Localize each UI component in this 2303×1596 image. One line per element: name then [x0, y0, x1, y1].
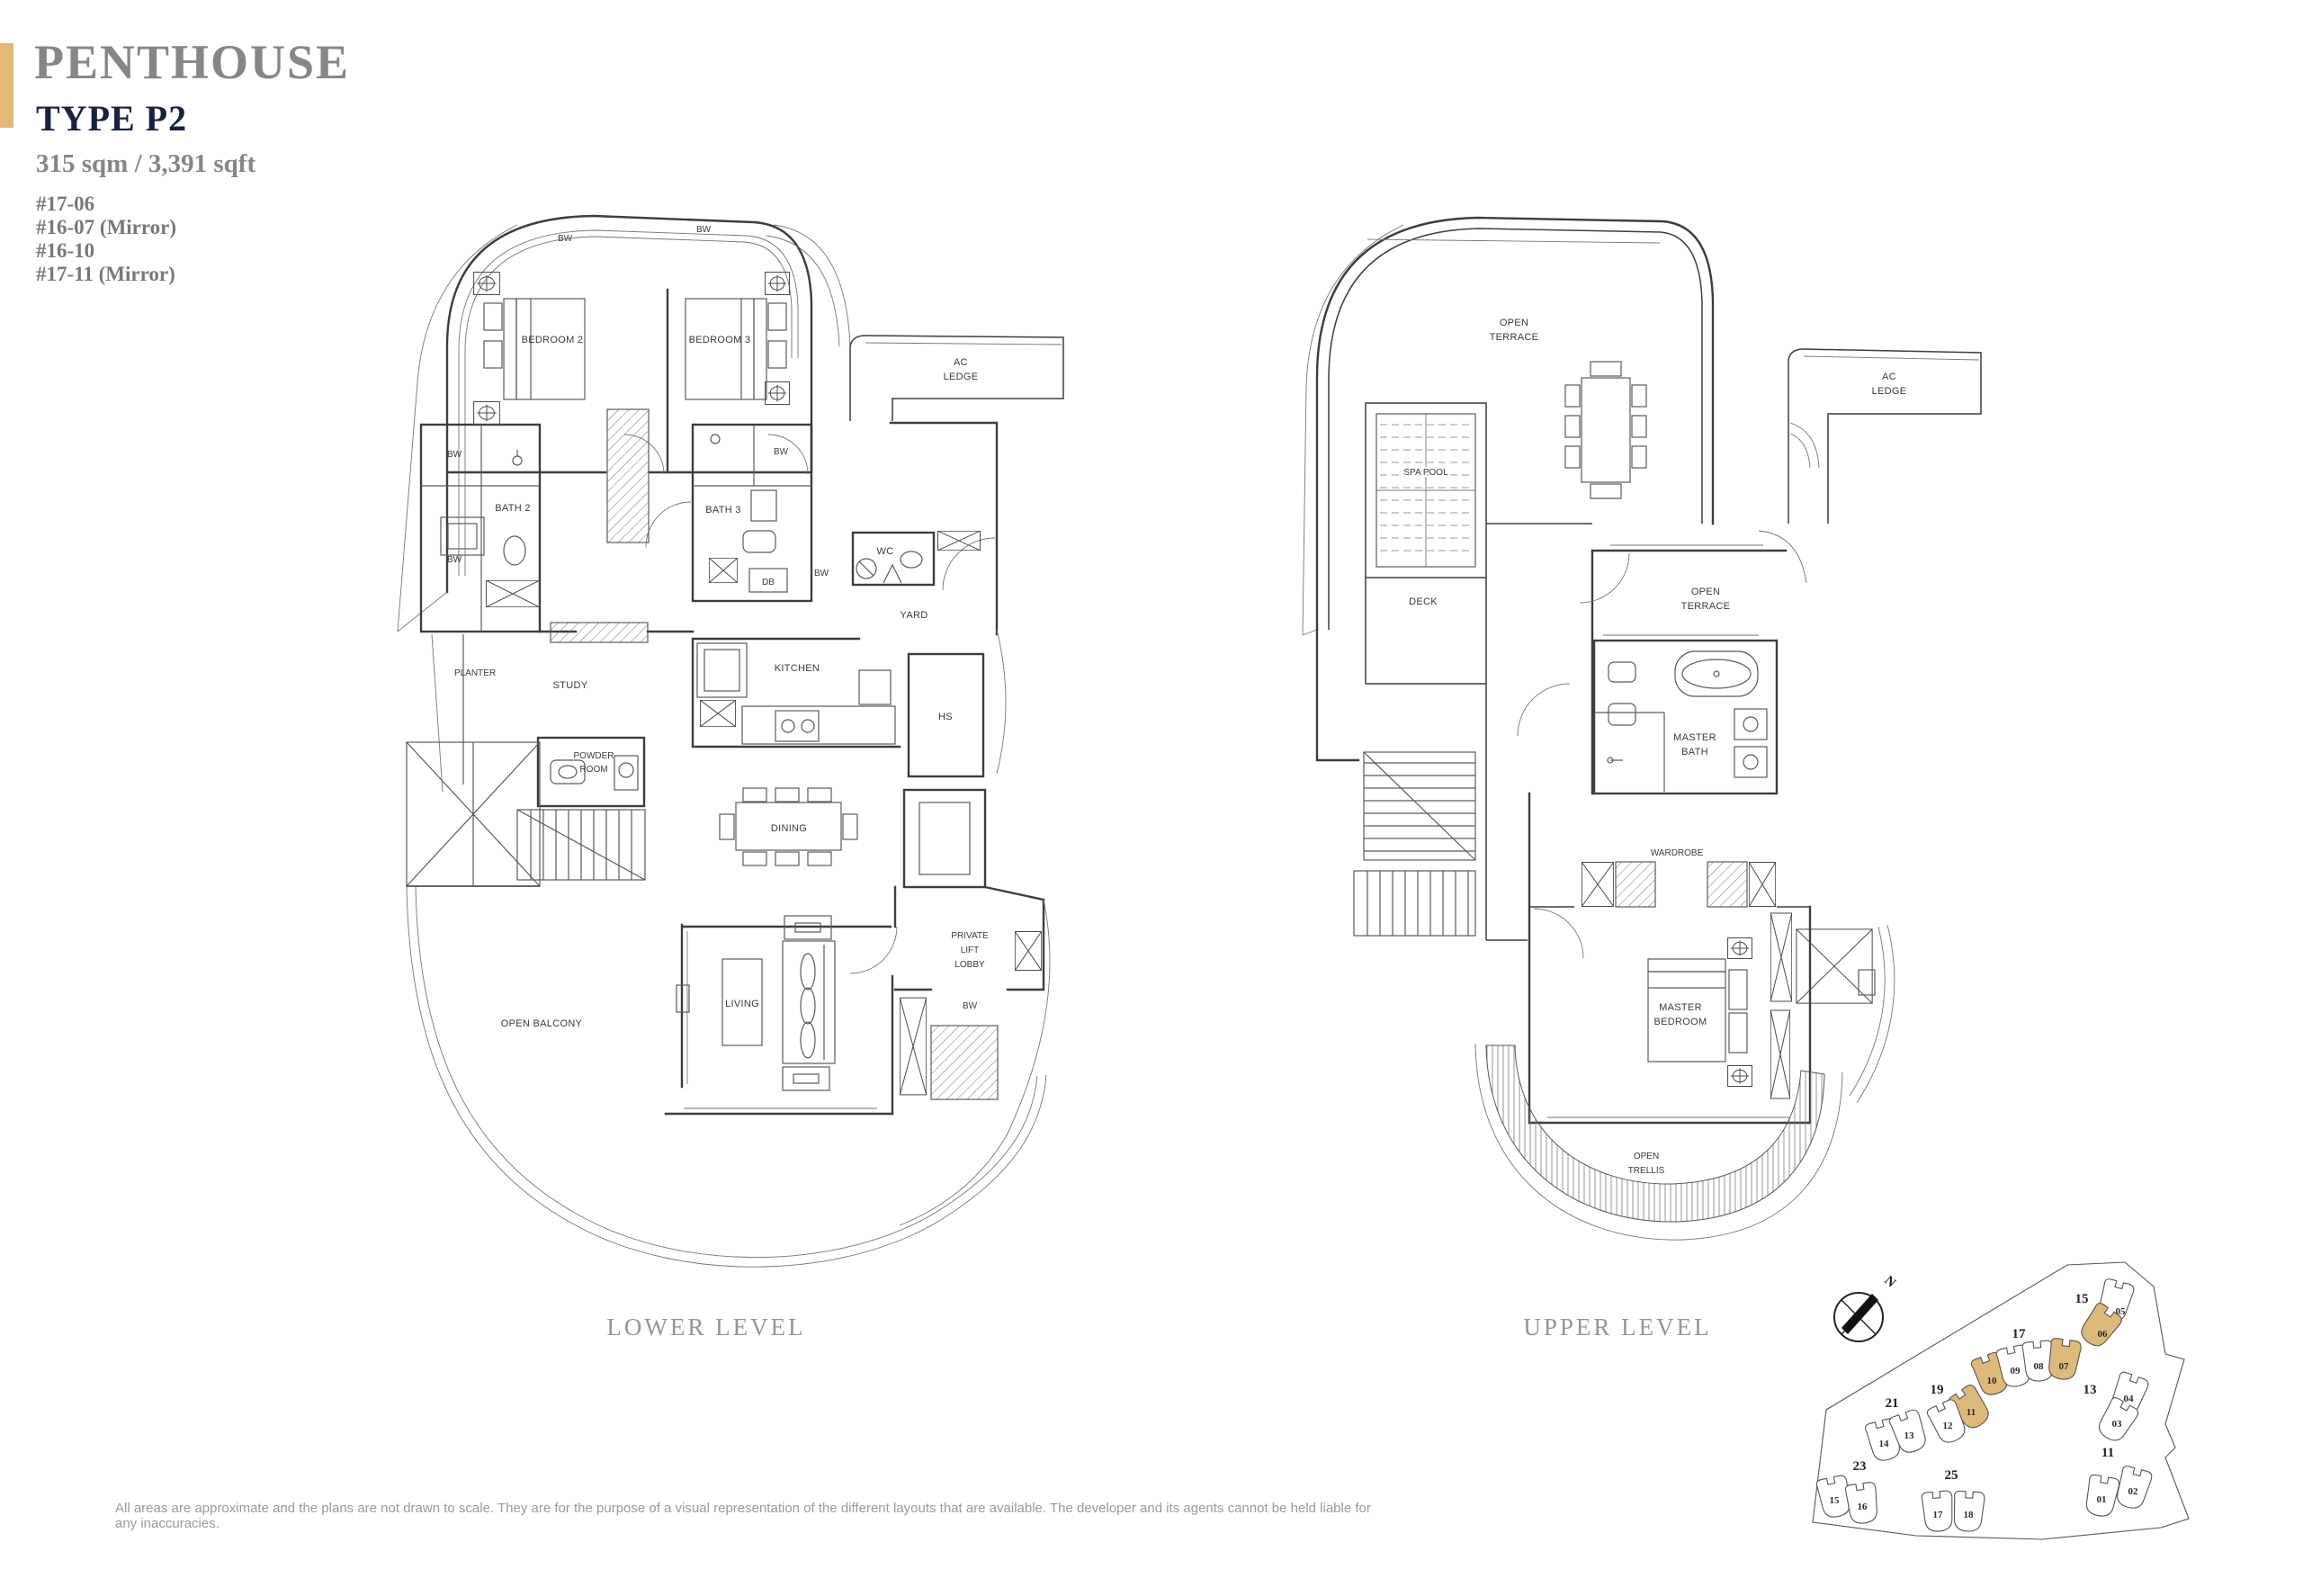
unit-label-13: 13 [1904, 1430, 1915, 1441]
label-hs: HS [938, 712, 953, 722]
unit-label-07: 07 [2059, 1361, 2070, 1372]
caption-lower-level: LOWER LEVEL [562, 1314, 850, 1341]
label-bath3: BATH 3 [705, 505, 741, 516]
label-open-terrace: TERRACE [1490, 332, 1539, 343]
label-ac-ledge: AC [1882, 372, 1896, 382]
label-open-balcony: OPEN BALCONY [501, 1018, 583, 1029]
label-bedroom2: BEDROOM 2 [522, 335, 584, 345]
unit-label-05: 05 [2116, 1306, 2127, 1317]
compass-icon: N [1834, 1273, 1898, 1341]
site-plan: N [1808, 1242, 2303, 1596]
label-open-terrace: OPEN [1500, 318, 1528, 328]
label-ac-ledge: LEDGE [944, 372, 979, 382]
unit-label-17: 17 [1933, 1510, 1944, 1520]
block-label-11: 11 [2101, 1446, 2114, 1460]
label-bath2: BATH 2 [495, 503, 531, 514]
unit-label-03: 03 [2112, 1419, 2123, 1430]
unit-list: #17-06 #16-07 (Mirror) #16-10 #17-11 (Mi… [36, 193, 176, 286]
unit-label-06: 06 [2098, 1329, 2109, 1340]
upper-walls [1303, 218, 1981, 1240]
unit-label-14: 14 [1879, 1439, 1890, 1449]
label-private-lift-lobby: LOBBY [954, 960, 985, 970]
label-master-bedroom: BEDROOM [1654, 1017, 1707, 1027]
label-powder-room: POWDER [574, 751, 614, 761]
label-bw: BW [447, 450, 462, 460]
label-master-bath: BATH [1681, 747, 1708, 758]
block-label-25: 25 [1945, 1468, 1958, 1483]
area-label: 315 sqm / 3,391 sqft [36, 149, 255, 179]
unit-label-04: 04 [2124, 1394, 2135, 1404]
label-powder-room: ROOM [579, 765, 607, 775]
type-label: TYPE P2 [36, 97, 187, 139]
unit-label-02: 02 [2128, 1486, 2139, 1497]
label-study: STUDY [553, 680, 588, 691]
label-master-bedroom: MASTER [1659, 1002, 1702, 1013]
label-planter: PLANTER [454, 668, 496, 678]
unit-item: #17-06 [36, 193, 176, 216]
unit-item: #16-07 (Mirror) [36, 216, 176, 239]
block-label-15: 15 [2075, 1292, 2089, 1306]
block-label-19: 19 [1931, 1383, 1944, 1397]
label-open-terrace-2: TERRACE [1681, 601, 1731, 612]
label-open-trellis: TRELLIS [1628, 1166, 1665, 1176]
unit-label-15: 15 [1830, 1495, 1841, 1506]
label-ac-ledge: AC [954, 357, 968, 368]
block-label-23: 23 [1853, 1459, 1867, 1474]
caption-upper-level: UPPER LEVEL [1474, 1314, 1761, 1341]
unit-item: #16-10 [36, 239, 176, 263]
label-private-lift-lobby: PRIVATE [951, 931, 989, 941]
block-label-21: 21 [1886, 1396, 1899, 1411]
upper-room-labels: OPEN TERRACE AC LEDGE SPA POOL DECK OPEN… [1403, 318, 1906, 1176]
unit-label-08: 08 [2034, 1361, 2045, 1372]
unit-item: #17-11 (Mirror) [36, 263, 176, 286]
label-private-lift-lobby: LIFT [961, 946, 980, 955]
label-bw: BW [696, 225, 712, 235]
block-label-17: 17 [2012, 1327, 2027, 1341]
unit-label-10: 10 [1987, 1376, 1998, 1386]
block-label-13: 13 [2083, 1383, 2097, 1397]
label-ac-ledge: LEDGE [1872, 386, 1907, 397]
compass-north-label: N [1881, 1273, 1898, 1290]
unit-label-11: 11 [1967, 1407, 1976, 1418]
gold-accent-bar [0, 43, 13, 128]
unit-label-18: 18 [1964, 1510, 1975, 1520]
label-spa-pool: SPA POOL [1403, 468, 1448, 478]
label-bw: BW [774, 447, 789, 457]
floorplan-lower: BW BW BEDROOM 2 BEDROOM 3 AC LEDGE BW BW… [387, 202, 1071, 1291]
label-bw: BW [558, 234, 573, 244]
label-db: DB [762, 578, 775, 587]
page-title: PENTHOUSE [34, 34, 350, 90]
label-open-trellis: OPEN [1634, 1152, 1659, 1161]
label-yard: YARD [901, 610, 928, 621]
label-wardrobe: WARDROBE [1651, 848, 1704, 858]
label-bw: BW [814, 569, 829, 578]
unit-label-09: 09 [2011, 1366, 2021, 1376]
label-bw: BW [963, 1001, 978, 1011]
floorplan-upper: OPEN TERRACE AC LEDGE SPA POOL DECK OPEN… [1286, 202, 1988, 1291]
label-kitchen: KITCHEN [775, 663, 820, 674]
label-deck: DECK [1409, 596, 1438, 607]
label-wc: WC [877, 546, 894, 557]
unit-label-16: 16 [1858, 1502, 1868, 1512]
label-open-terrace-2: OPEN [1691, 587, 1720, 597]
lower-room-labels: BW BW BEDROOM 2 BEDROOM 3 AC LEDGE BW BW… [447, 225, 989, 1029]
unit-shape-07 [2047, 1338, 2082, 1381]
label-bw: BW [447, 555, 462, 565]
label-master-bath: MASTER [1673, 732, 1716, 743]
floorplan-page: PENTHOUSE TYPE P2 315 sqm / 3,391 sqft #… [0, 0, 2303, 1596]
label-dining: DINING [771, 823, 807, 834]
label-living: LIVING [725, 999, 759, 1009]
unit-label-01: 01 [2097, 1494, 2107, 1505]
unit-label-12: 12 [1943, 1421, 1954, 1431]
label-bedroom3: BEDROOM 3 [689, 335, 751, 345]
disclaimer: All areas are approximate and the plans … [115, 1501, 1375, 1531]
